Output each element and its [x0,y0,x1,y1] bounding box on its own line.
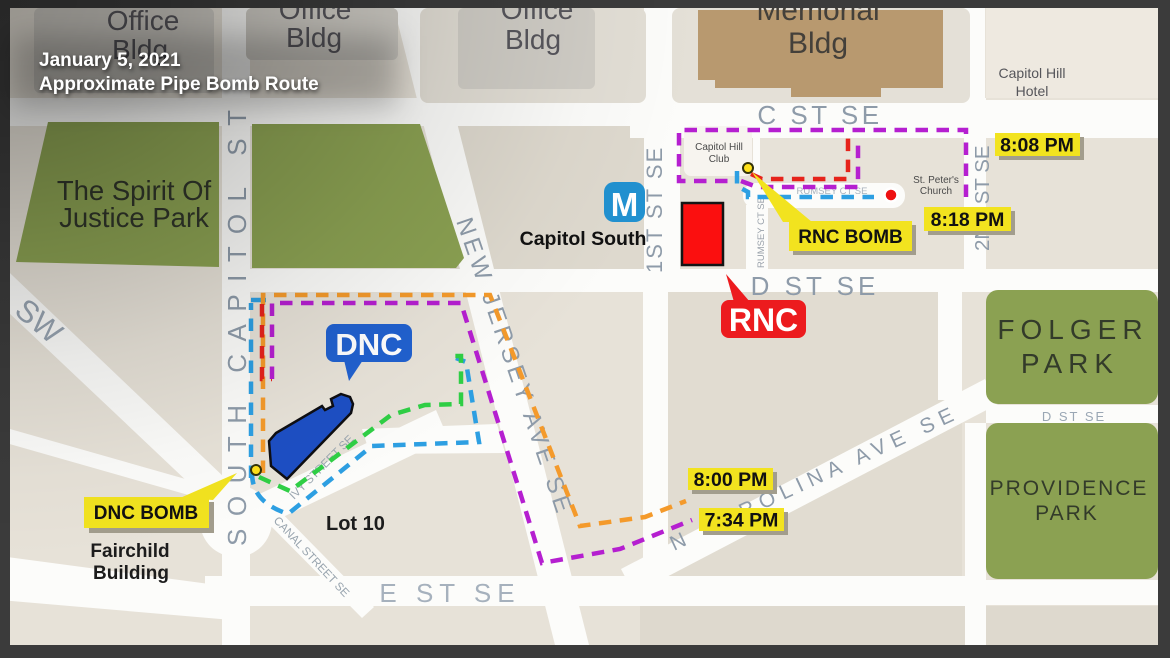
svg-text:E ST SE: E ST SE [379,578,520,608]
svg-text:FOLGER: FOLGER [997,314,1148,345]
svg-text:2ND ST SE: 2ND ST SE [971,145,994,251]
svg-text:Bldg: Bldg [788,27,848,60]
svg-text:D ST SE: D ST SE [751,271,880,301]
svg-text:PARK: PARK [1035,502,1099,525]
svg-text:Hotel: Hotel [1016,83,1049,99]
svg-text:St. Peter's: St. Peter's [913,175,959,186]
svg-text:PARK: PARK [1021,348,1119,379]
svg-text:Capitol Hill: Capitol Hill [999,65,1066,81]
svg-text:C ST SE: C ST SE [757,100,882,130]
svg-text:8:08 PM: 8:08 PM [1000,135,1074,157]
svg-text:PROVIDENCE: PROVIDENCE [990,477,1149,500]
svg-text:Building: Building [93,563,169,584]
svg-text:8:18 PM: 8:18 PM [931,209,1005,231]
svg-text:RNC BOMB: RNC BOMB [798,227,903,248]
svg-text:Church: Church [920,186,952,197]
svg-text:D ST SE: D ST SE [1042,409,1106,424]
